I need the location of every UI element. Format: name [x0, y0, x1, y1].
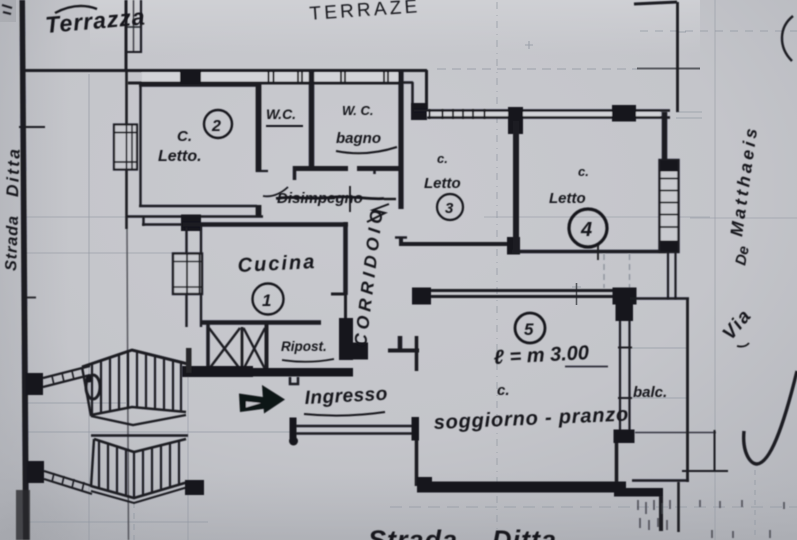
- svg-text:c.: c.: [437, 151, 448, 166]
- svg-text:4: 4: [580, 219, 592, 241]
- svg-text:Letto: Letto: [549, 190, 586, 207]
- svg-text:W. C.: W. C.: [342, 103, 374, 118]
- svg-text:Strada: Strada: [3, 215, 22, 271]
- svg-text:Cucina: Cucina: [237, 251, 317, 277]
- svg-text:Ditta: Ditta: [3, 146, 24, 197]
- svg-text:Letto: Letto: [424, 175, 461, 192]
- svg-text:1: 1: [262, 291, 271, 310]
- svg-text:Ingresso: Ingresso: [304, 384, 388, 409]
- svg-text:5: 5: [524, 320, 534, 339]
- svg-text:W.C.: W.C.: [266, 106, 296, 122]
- svg-text:balc.: balc.: [633, 384, 667, 401]
- svg-text:C.: C.: [177, 128, 192, 145]
- svg-text:c.: c.: [497, 382, 510, 399]
- svg-text:bagno: bagno: [336, 130, 381, 147]
- svg-text:2: 2: [211, 118, 221, 135]
- svg-text:Ripost.: Ripost.: [281, 339, 327, 354]
- svg-text:Letto.: Letto.: [158, 148, 202, 165]
- svg-text:3: 3: [445, 200, 454, 217]
- svg-text:c.: c.: [578, 164, 589, 179]
- svg-text:Strada Ditta: Strada Ditta: [368, 525, 557, 540]
